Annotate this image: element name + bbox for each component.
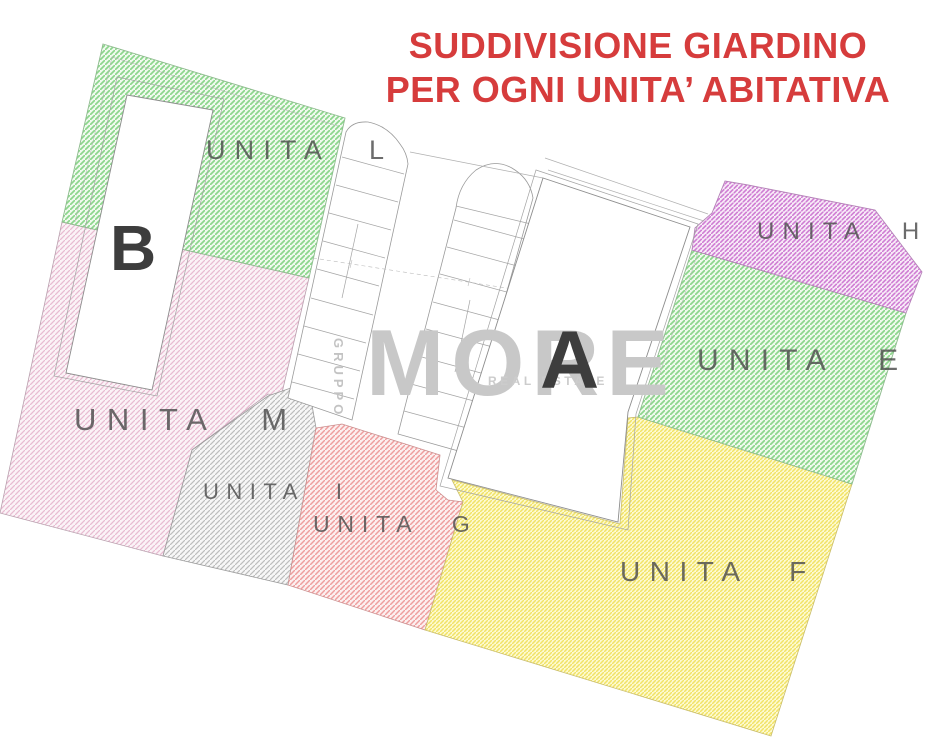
page-title: SUDDIVISIONE GIARDINO PER OGNI UNITA’ AB…: [382, 24, 894, 111]
page-title-line2: PER OGNI UNITA’ ABITATIVA: [382, 68, 894, 112]
watermark-more: MORE: [366, 316, 676, 410]
region-label-unita-h: UNITA H: [757, 220, 927, 244]
watermark-gruppo: GRUPPO: [331, 338, 346, 418]
region-label-unita-i: UNITA I: [203, 481, 349, 503]
building-a-letter: A: [540, 320, 599, 402]
building-b-letter: B: [110, 216, 156, 280]
plan-canvas: GRUPPO MORE REAL ESTATE B A UNITA L UNIT…: [0, 0, 932, 738]
region-label-unita-m: UNITA M: [74, 404, 298, 435]
region-label-unita-f: UNITA F: [620, 558, 816, 586]
region-label-unita-g: UNITA G: [313, 513, 478, 536]
region-label-unita-l: UNITA L: [206, 137, 393, 164]
region-label-unita-e: UNITA E: [697, 346, 908, 376]
page-title-line1: SUDDIVISIONE GIARDINO: [382, 24, 894, 68]
